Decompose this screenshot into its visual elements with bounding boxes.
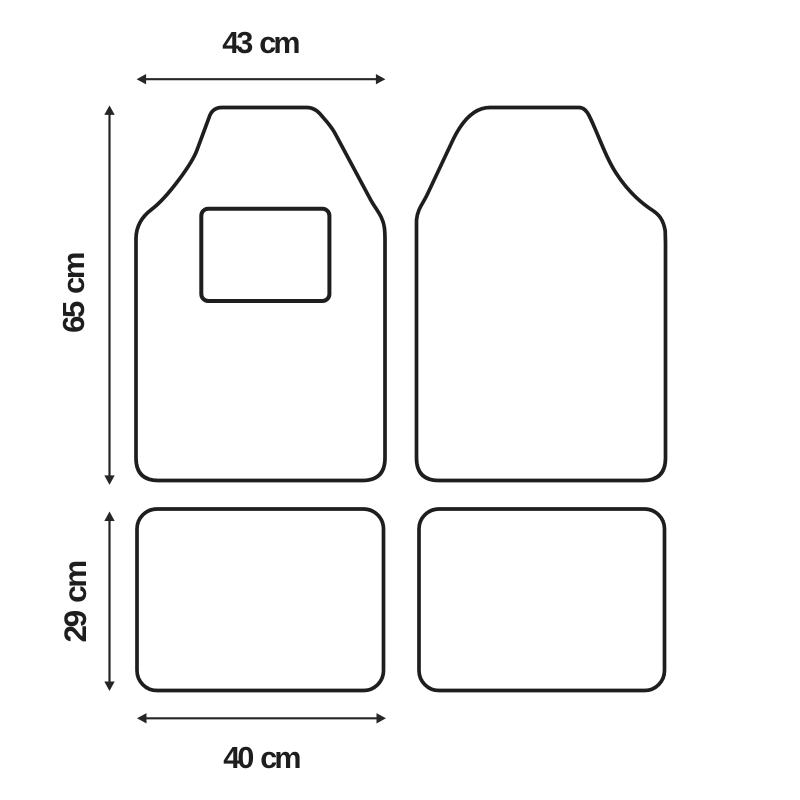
svg-text:43 cm: 43 cm [222, 26, 299, 60]
svg-text:29 cm: 29 cm [57, 561, 93, 643]
svg-text:65 cm: 65 cm [56, 253, 91, 333]
svg-text:40 cm: 40 cm [223, 741, 300, 775]
